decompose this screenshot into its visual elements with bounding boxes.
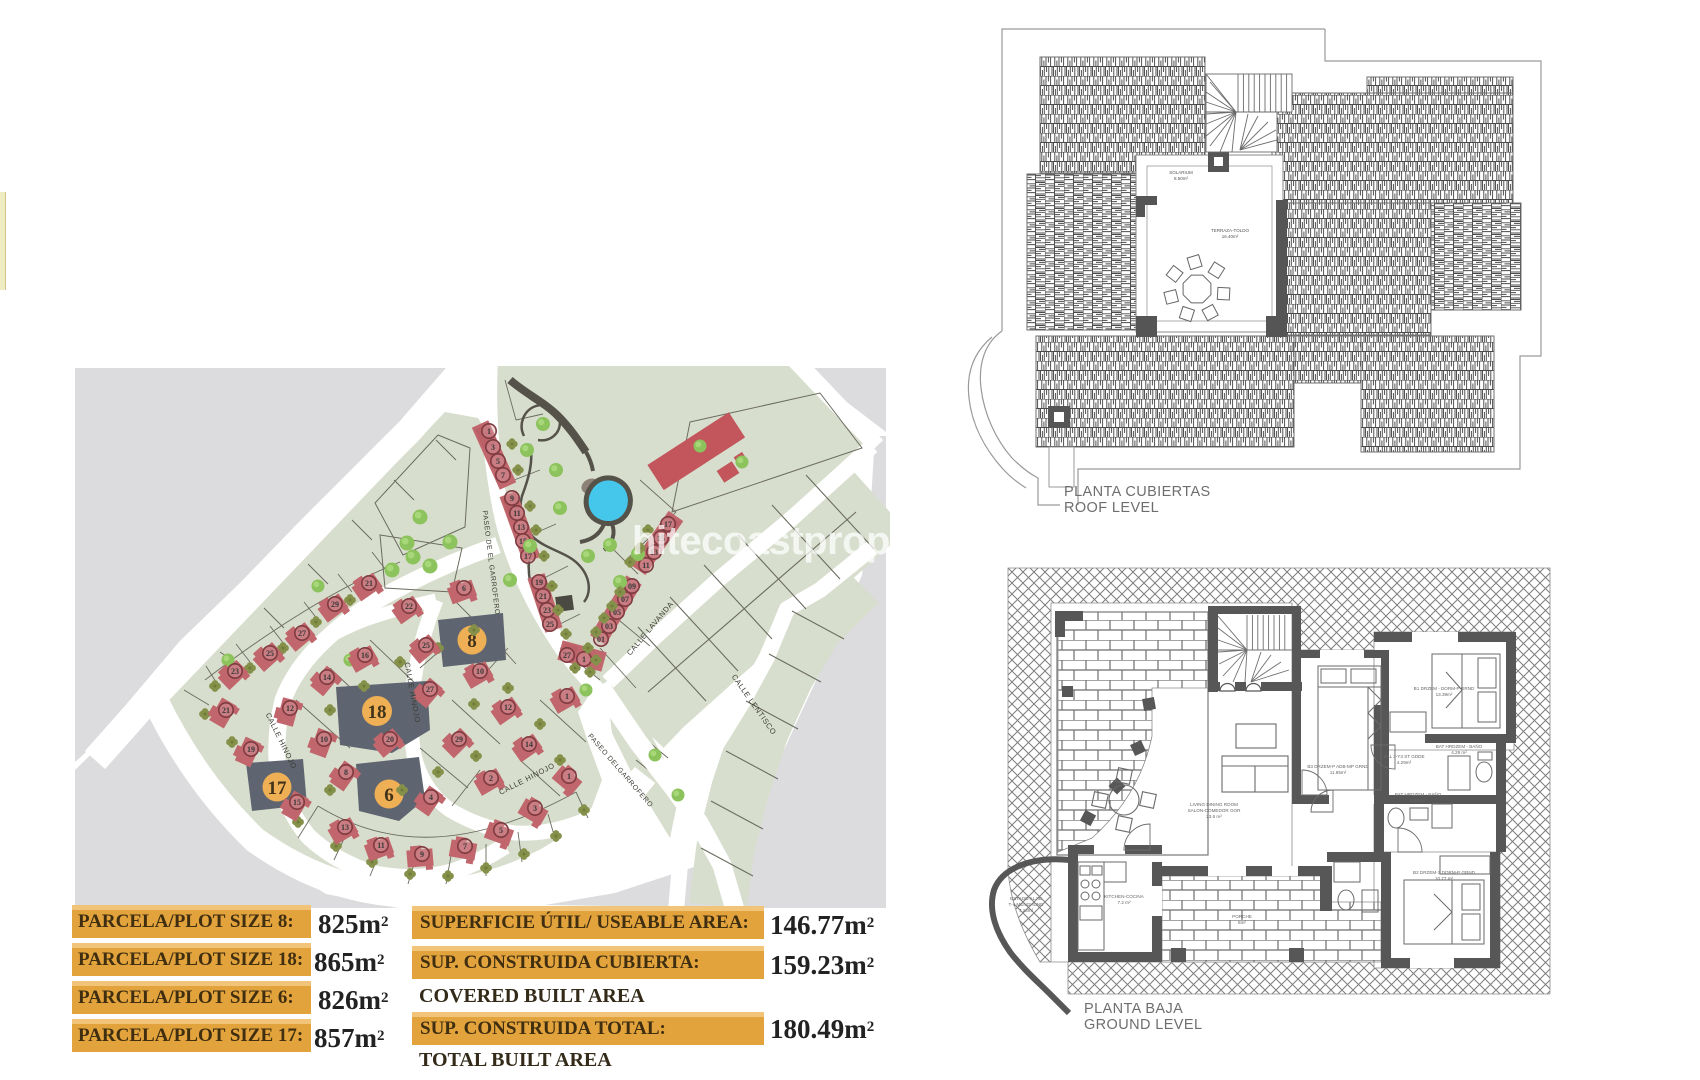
svg-text:9: 9 [420,850,424,859]
svg-text:19: 19 [535,578,543,587]
svg-text:4: 4 [429,793,433,802]
svg-text:3: 3 [533,804,537,813]
svg-text:21: 21 [539,592,547,601]
svg-text:7.2 m²: 7.2 m² [1117,900,1130,905]
svg-text:11.85m²: 11.85m² [1330,770,1347,775]
svg-text:14: 14 [525,740,533,749]
svg-text:4.85 m²: 4.85 m² [1410,798,1426,803]
svg-text:8.50m²: 8.50m² [1174,176,1189,181]
svg-text:2: 2 [489,774,493,783]
svg-text:10: 10 [320,735,328,744]
svg-text:6: 6 [384,785,394,806]
svg-text:1: 1 [565,692,569,701]
svg-text:13: 13 [341,823,349,832]
svg-text:12: 12 [286,704,294,713]
svg-text:PORCHE: PORCHE [1232,914,1252,919]
svg-text:17: 17 [268,778,288,799]
svg-text:BAT HRDZEM - BAÑO: BAT HRDZEM - BAÑO [1436,743,1483,749]
svg-text:14: 14 [323,673,331,682]
svg-text:4.29 m²: 4.29 m² [1451,750,1467,755]
svg-text:1: 1 [582,655,586,664]
svg-text:13.39m²: 13.39m² [1436,692,1453,697]
svg-text:4.29m²: 4.29m² [1397,760,1412,765]
svg-text:17: 17 [524,552,532,561]
svg-text:19: 19 [247,745,255,754]
svg-text:15: 15 [293,798,301,807]
svg-text:1: 1 [487,427,491,436]
svg-text:5: 5 [496,457,500,466]
svg-text:12: 12 [504,703,512,712]
svg-text:27: 27 [426,685,434,694]
svg-text:7.23m²: 7.23m² [1019,908,1034,913]
svg-text:11: 11 [513,509,521,518]
svg-text:SOLARIUM: SOLARIUM [1169,170,1193,175]
svg-text:09: 09 [628,582,636,591]
svg-text:9: 9 [510,494,514,503]
svg-text:SALON-COMEDOR GOR: SALON-COMEDOR GOR [1188,808,1242,813]
svg-text:8: 8 [344,768,348,777]
svg-text:21: 21 [365,579,373,588]
svg-text:29: 29 [455,735,463,744]
svg-text:1: 1 [567,772,571,781]
svg-text:23: 23 [231,667,239,676]
svg-text:11: 11 [377,841,385,850]
svg-text:27: 27 [563,651,571,660]
svg-text:23: 23 [543,606,551,615]
svg-text:TERRAZA-TOLDO: TERRAZA-TOLDO [1211,228,1249,233]
svg-text:KITCHEN-COCINA: KITCHEN-COCINA [1104,894,1144,899]
svg-text:03: 03 [605,622,613,631]
svg-text:ESTADO ALJIB: ESTADO ALJIB [1010,896,1042,901]
svg-text:7: 7 [501,471,505,480]
svg-text:10.77 m²: 10.77 m² [1435,876,1454,881]
svg-text:B1 DRZEM - DORM-P GRND: B1 DRZEM - DORM-P GRND [1414,686,1475,691]
svg-text:22: 22 [405,602,413,611]
svg-text:5: 5 [499,826,503,835]
svg-text:LIVING DINING ROOM: LIVING DINING ROOM [1190,802,1238,807]
svg-text:25: 25 [546,620,554,629]
svg-text:25: 25 [422,641,430,650]
svg-text:16: 16 [361,651,369,660]
svg-text:21: 21 [222,706,230,715]
svg-text:6: 6 [462,584,466,593]
svg-text:18: 18 [368,702,387,723]
svg-text:10: 10 [476,667,484,676]
svg-text:8m²: 8m² [1238,920,1246,925]
svg-text:3: 3 [491,443,495,452]
svg-text:27: 27 [298,629,306,638]
svg-text:BAL 3-Y3 ST GDDE: BAL 3-Y3 ST GDDE [1383,754,1424,759]
svg-text:23.6 m²: 23.6 m² [1206,814,1222,819]
svg-text:16.40m²: 16.40m² [1222,234,1239,239]
svg-text:13: 13 [517,523,525,532]
svg-text:20: 20 [386,735,394,744]
svg-text:25: 25 [266,649,274,658]
svg-text:B3 DRZEM-P ADB-MP GRND: B3 DRZEM-P ADB-MP GRND [1307,764,1369,769]
svg-text:T-4 MENGHUND: T-4 MENGHUND [1009,902,1045,907]
svg-text:B2 DRZEM-3 DORM-P GRND: B2 DRZEM-3 DORM-P GRND [1413,870,1476,875]
svg-text:7: 7 [463,842,467,851]
svg-text:BAT HRDZEM - BAÑO: BAT HRDZEM - BAÑO [1395,791,1442,797]
svg-text:29: 29 [331,600,339,609]
